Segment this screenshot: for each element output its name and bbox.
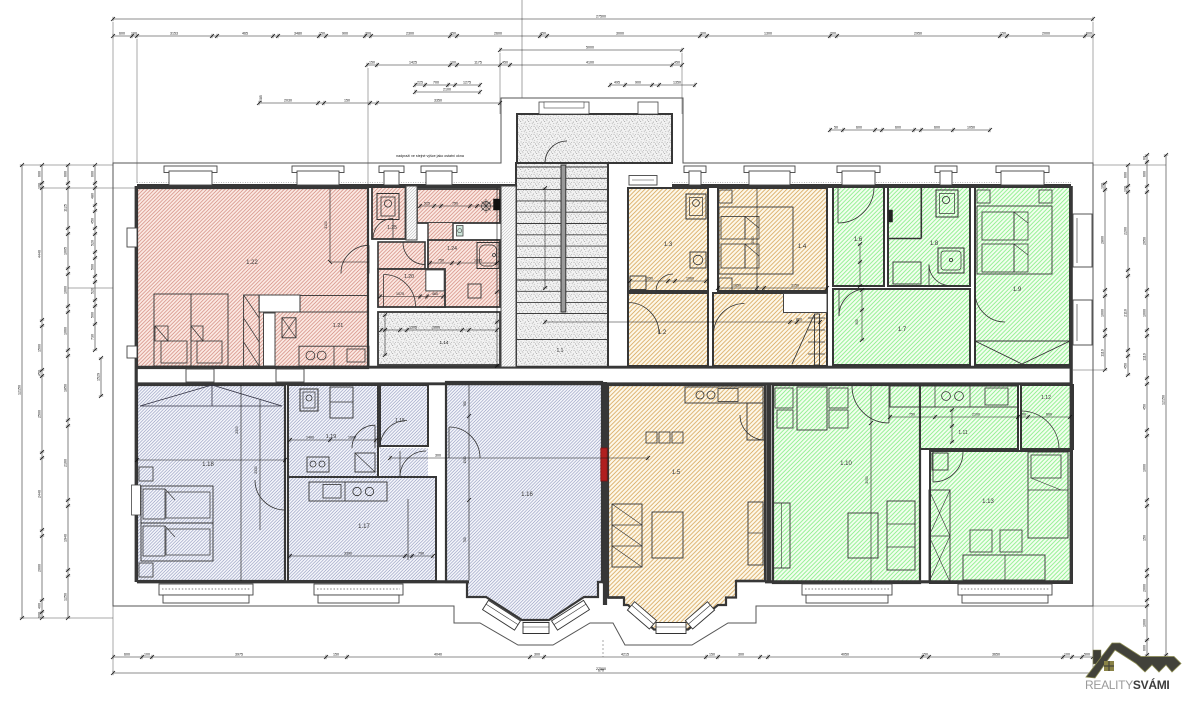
svg-text:400: 400 (38, 603, 42, 609)
svg-text:1.8: 1.8 (930, 241, 939, 247)
svg-text:1.1: 1.1 (557, 348, 564, 354)
svg-text:2950: 2950 (914, 32, 922, 36)
svg-text:1850: 1850 (64, 384, 68, 392)
svg-text:495: 495 (614, 81, 620, 85)
svg-text:500: 500 (1084, 653, 1090, 657)
svg-text:1.25: 1.25 (387, 225, 397, 231)
svg-text:3050: 3050 (865, 476, 869, 484)
svg-text:520: 520 (91, 288, 95, 294)
svg-text:1.21: 1.21 (333, 323, 344, 329)
svg-text:700: 700 (463, 537, 467, 543)
svg-text:1529: 1529 (97, 373, 101, 381)
svg-text:600: 600 (64, 171, 68, 177)
svg-text:1.4: 1.4 (798, 244, 807, 250)
svg-text:450: 450 (1143, 404, 1147, 410)
svg-text:1.18: 1.18 (202, 462, 214, 468)
svg-text:2300: 2300 (406, 32, 414, 36)
svg-text:2300: 2300 (235, 426, 239, 434)
svg-text:150: 150 (1000, 32, 1006, 36)
svg-text:1.20: 1.20 (404, 274, 414, 280)
svg-text:300: 300 (738, 653, 744, 657)
svg-text:225: 225 (417, 81, 423, 85)
svg-text:150: 150 (333, 653, 339, 657)
svg-text:300: 300 (700, 32, 706, 36)
svg-text:1000: 1000 (1143, 464, 1147, 472)
svg-text:3390: 3390 (344, 552, 352, 556)
svg-text:150: 150 (344, 99, 350, 103)
svg-text:1400: 1400 (306, 436, 314, 440)
svg-text:1.9: 1.9 (1013, 287, 1022, 293)
svg-text:3050: 3050 (751, 236, 755, 244)
svg-text:1005: 1005 (64, 247, 68, 255)
svg-text:2500: 2500 (38, 410, 42, 418)
svg-text:520: 520 (91, 240, 95, 246)
svg-text:100: 100 (1064, 653, 1070, 657)
svg-text:12150: 12150 (1162, 395, 1166, 405)
svg-text:2000: 2000 (38, 564, 42, 572)
svg-text:600: 600 (856, 126, 862, 130)
svg-text:3100: 3100 (324, 221, 328, 229)
svg-text:600: 600 (1143, 171, 1147, 177)
svg-text:100: 100 (1124, 186, 1128, 192)
svg-text:50: 50 (834, 126, 838, 130)
svg-text:1125: 1125 (64, 204, 68, 212)
svg-text:100: 100 (450, 61, 456, 65)
svg-text:1060: 1060 (686, 277, 694, 281)
svg-text:nadpraží ve stejné výšce jako: nadpraží ve stejné výšce jako ostatní ok… (396, 154, 464, 158)
svg-text:2330: 2330 (254, 466, 258, 474)
svg-text:1425: 1425 (409, 61, 417, 65)
svg-text:2600: 2600 (494, 32, 502, 36)
svg-text:465: 465 (242, 32, 248, 36)
svg-text:1.7: 1.7 (898, 327, 907, 333)
svg-text:500: 500 (91, 312, 95, 318)
svg-text:600: 600 (91, 171, 95, 177)
svg-text:2200: 2200 (1124, 227, 1128, 235)
svg-text:1110: 1110 (1143, 353, 1147, 360)
svg-text:860: 860 (796, 318, 802, 322)
svg-text:4040: 4040 (434, 653, 442, 657)
svg-text:1075: 1075 (396, 292, 404, 296)
svg-text:2110: 2110 (1124, 309, 1128, 317)
svg-text:100: 100 (1101, 183, 1105, 189)
svg-text:200: 200 (830, 32, 836, 36)
svg-text:790: 790 (418, 552, 424, 556)
svg-text:12150: 12150 (18, 385, 22, 395)
svg-text:2030: 2030 (284, 99, 292, 103)
svg-text:600: 600 (895, 126, 901, 130)
svg-text:450: 450 (502, 61, 508, 65)
svg-text:2800: 2800 (1101, 236, 1105, 244)
svg-text:27500: 27500 (596, 15, 606, 19)
svg-text:450: 450 (38, 370, 42, 376)
svg-text:1085: 1085 (259, 95, 263, 103)
svg-text:1000: 1000 (1101, 309, 1105, 317)
svg-text:2650: 2650 (1143, 237, 1147, 245)
svg-text:1500: 1500 (38, 344, 42, 352)
svg-text:1110: 1110 (1101, 349, 1105, 356)
svg-text:750: 750 (438, 259, 444, 263)
svg-text:900: 900 (342, 32, 348, 36)
svg-text:150: 150 (922, 653, 928, 657)
svg-text:1.24: 1.24 (447, 246, 457, 252)
svg-text:150: 150 (369, 61, 375, 65)
svg-text:2100: 2100 (972, 413, 980, 417)
svg-text:500: 500 (91, 264, 95, 270)
svg-text:300: 300 (435, 454, 441, 458)
svg-text:600: 600 (934, 126, 940, 130)
svg-text:4050: 4050 (841, 653, 849, 657)
svg-text:760: 760 (463, 401, 467, 407)
svg-text:27500: 27500 (596, 667, 606, 671)
svg-text:600: 600 (38, 612, 42, 618)
svg-text:1300: 1300 (764, 32, 772, 36)
svg-text:1050: 1050 (967, 126, 975, 130)
svg-text:1275: 1275 (463, 81, 471, 85)
svg-text:1305: 1305 (409, 326, 417, 330)
svg-text:3150: 3150 (791, 284, 799, 288)
svg-text:2000: 2000 (1143, 584, 1147, 592)
svg-text:1940: 1940 (64, 534, 68, 542)
svg-text:450: 450 (91, 218, 95, 224)
svg-text:3480: 3480 (294, 32, 302, 36)
svg-text:450: 450 (1124, 363, 1128, 369)
svg-text:2160: 2160 (64, 459, 68, 467)
svg-text:1.13: 1.13 (982, 499, 994, 505)
svg-text:150: 150 (709, 653, 715, 657)
svg-text:4440: 4440 (38, 250, 42, 258)
svg-text:2060: 2060 (432, 326, 440, 330)
svg-text:1.16: 1.16 (521, 492, 533, 498)
svg-text:100: 100 (38, 183, 42, 189)
svg-text:600: 600 (119, 32, 125, 36)
svg-text:525: 525 (424, 202, 430, 206)
svg-text:450: 450 (674, 61, 680, 65)
svg-text:600: 600 (1086, 32, 1092, 36)
svg-text:1060: 1060 (64, 327, 68, 335)
svg-text:1.22: 1.22 (246, 260, 258, 266)
svg-text:1000: 1000 (64, 286, 68, 294)
svg-text:1175: 1175 (474, 61, 482, 65)
svg-text:1500: 1500 (463, 456, 467, 463)
svg-text:1.5: 1.5 (672, 470, 681, 476)
svg-text:2000: 2000 (1042, 32, 1050, 36)
svg-text:1.14: 1.14 (440, 340, 449, 345)
svg-text:600: 600 (124, 653, 130, 657)
svg-text:1050: 1050 (645, 277, 653, 281)
svg-text:REALITYSVÁMI: REALITYSVÁMI (1085, 677, 1169, 692)
svg-text:900: 900 (855, 319, 859, 325)
svg-text:60: 60 (1143, 156, 1147, 160)
svg-text:1850: 1850 (733, 284, 741, 288)
svg-text:1.3: 1.3 (664, 242, 673, 248)
svg-text:1000: 1000 (1143, 309, 1147, 317)
svg-text:4215: 4215 (621, 653, 629, 657)
svg-text:3153: 3153 (170, 32, 178, 36)
svg-text:4100: 4100 (586, 61, 594, 65)
svg-text:1.10: 1.10 (840, 461, 852, 467)
svg-text:700: 700 (433, 81, 439, 85)
svg-text:3350: 3350 (434, 99, 442, 103)
svg-text:450: 450 (540, 32, 546, 36)
svg-text:3650: 3650 (992, 653, 1000, 657)
svg-text:450: 450 (450, 32, 456, 36)
svg-text:900: 900 (635, 81, 641, 85)
svg-text:600: 600 (1124, 172, 1128, 178)
svg-text:300: 300 (365, 32, 371, 36)
svg-text:1.17: 1.17 (358, 524, 370, 530)
svg-text:460: 460 (432, 292, 438, 296)
svg-text:1.12: 1.12 (1041, 395, 1051, 401)
svg-text:480: 480 (91, 193, 95, 199)
svg-text:1600: 1600 (348, 436, 356, 440)
svg-text:1350: 1350 (673, 81, 681, 85)
svg-text:750: 750 (452, 202, 458, 206)
svg-text:150: 150 (1143, 535, 1147, 541)
svg-text:150: 150 (319, 32, 325, 36)
svg-text:1.11: 1.11 (958, 430, 968, 436)
svg-text:730: 730 (91, 334, 95, 340)
svg-text:3975: 3975 (235, 653, 243, 657)
svg-text:1000: 1000 (1143, 619, 1147, 627)
svg-text:3000: 3000 (616, 32, 624, 36)
svg-text:2100: 2100 (443, 88, 451, 92)
svg-text:1250: 1250 (64, 593, 68, 601)
svg-text:600: 600 (1143, 645, 1147, 651)
svg-text:600: 600 (1046, 413, 1052, 417)
svg-text:1305: 1305 (474, 259, 482, 263)
svg-text:750: 750 (909, 413, 915, 417)
svg-text:2440: 2440 (38, 490, 42, 498)
svg-text:5000: 5000 (586, 46, 594, 50)
svg-text:100: 100 (131, 32, 137, 36)
svg-text:600: 600 (38, 171, 42, 177)
svg-text:300: 300 (534, 653, 540, 657)
svg-text:100: 100 (144, 653, 150, 657)
